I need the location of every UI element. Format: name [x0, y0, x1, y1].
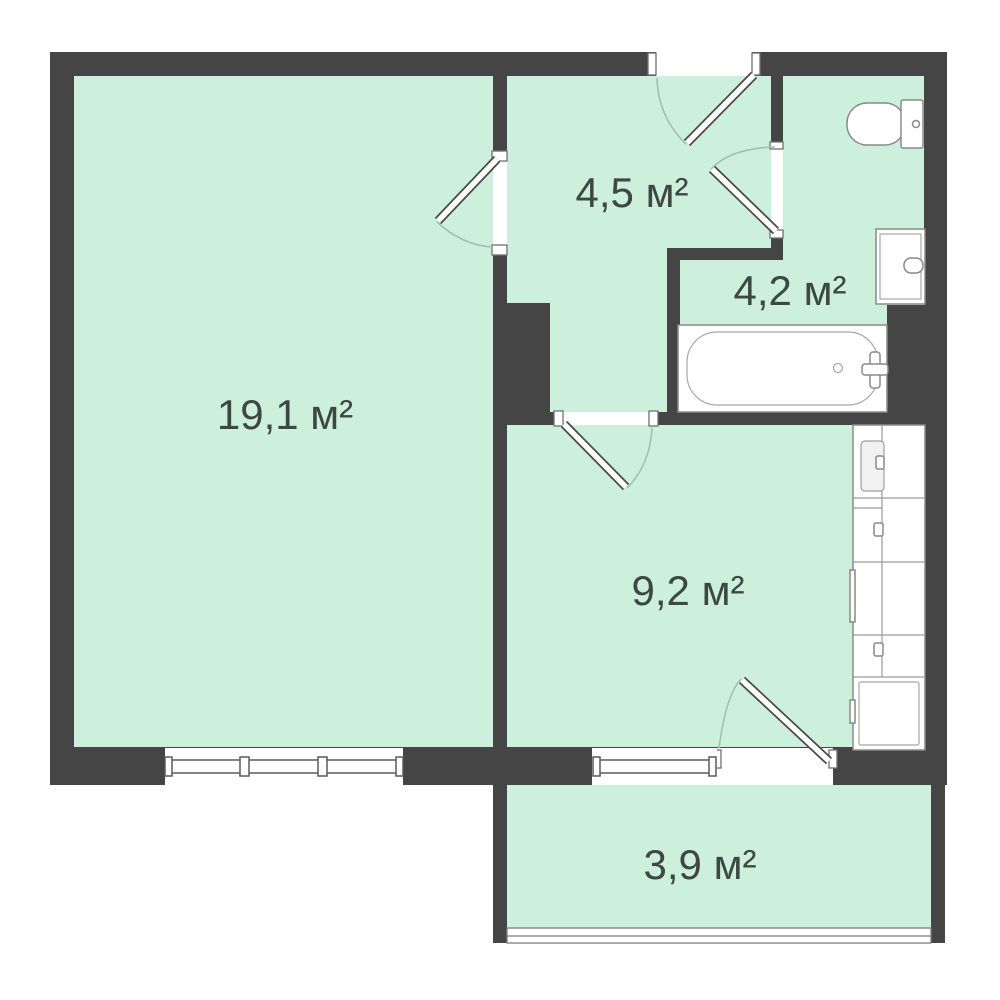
cabinet-handle-strip-2	[850, 700, 855, 723]
floor-plan: 19,1 м² 4,5 м² 4,2 м² 9,2 м² 3,9 м²	[0, 0, 1000, 1000]
window-mullion-1	[240, 757, 249, 776]
bathtub	[678, 325, 888, 412]
room-label-hallway: 4,5 м²	[576, 169, 689, 216]
entrance-jamb-left	[648, 53, 656, 75]
window-cap-left	[165, 757, 172, 776]
wall-balcony-right	[931, 766, 945, 943]
room-label-living: 19,1 м²	[217, 391, 353, 438]
wall-bathroom-top	[667, 248, 783, 260]
entrance-opening	[656, 52, 752, 76]
sink-faucet	[904, 258, 923, 273]
stove-handle	[876, 456, 884, 469]
floor-plan-canvas: 19,1 м² 4,5 м² 4,2 м² 9,2 м² 3,9 м²	[0, 0, 1000, 1000]
toilet-bowl	[847, 103, 905, 145]
room-label-kitchen: 9,2 м²	[632, 567, 745, 614]
window-cap-right	[396, 757, 403, 776]
bathroom-door-sill-top	[770, 142, 783, 149]
cabinet-handle-1	[874, 523, 883, 536]
kitchen-counter	[850, 425, 925, 750]
living-room-window	[165, 748, 403, 785]
kitchen-door-sill-left	[554, 411, 563, 426]
kitchen-door-opening	[563, 412, 649, 425]
bathtub-outer	[678, 325, 887, 412]
window-mullion-2	[318, 757, 327, 776]
bathroom-door-opening	[771, 148, 783, 231]
balcony-railing	[507, 928, 931, 943]
wall-right	[924, 52, 947, 785]
cabinet-handle-strip-1	[850, 570, 855, 622]
room-label-bathroom: 4,2 м²	[734, 267, 847, 314]
window-cap-right	[709, 757, 716, 776]
living-door-opening	[493, 160, 507, 246]
wall-duct	[887, 305, 924, 412]
toilet-button	[913, 121, 920, 128]
wall-pillar	[502, 303, 550, 413]
bath-faucet-horizontal	[862, 364, 888, 375]
kitchen-door-sill-right	[649, 411, 658, 426]
cabinet-handle-2	[874, 643, 883, 656]
room-label-balcony: 3,9 м²	[644, 841, 757, 888]
toilet	[847, 100, 923, 148]
window-glass	[171, 760, 397, 773]
entrance-jamb-right	[752, 53, 760, 75]
wall-top	[50, 52, 947, 76]
wall-balcony-left	[493, 785, 507, 943]
window-cap-left	[593, 757, 600, 776]
window-glass	[599, 760, 710, 773]
sink	[876, 229, 925, 304]
kitchen-window	[592, 748, 717, 785]
wall-hall-bathroom-upper	[771, 76, 783, 143]
wall-left	[50, 52, 74, 785]
living-door-sill-bottom	[492, 245, 507, 255]
